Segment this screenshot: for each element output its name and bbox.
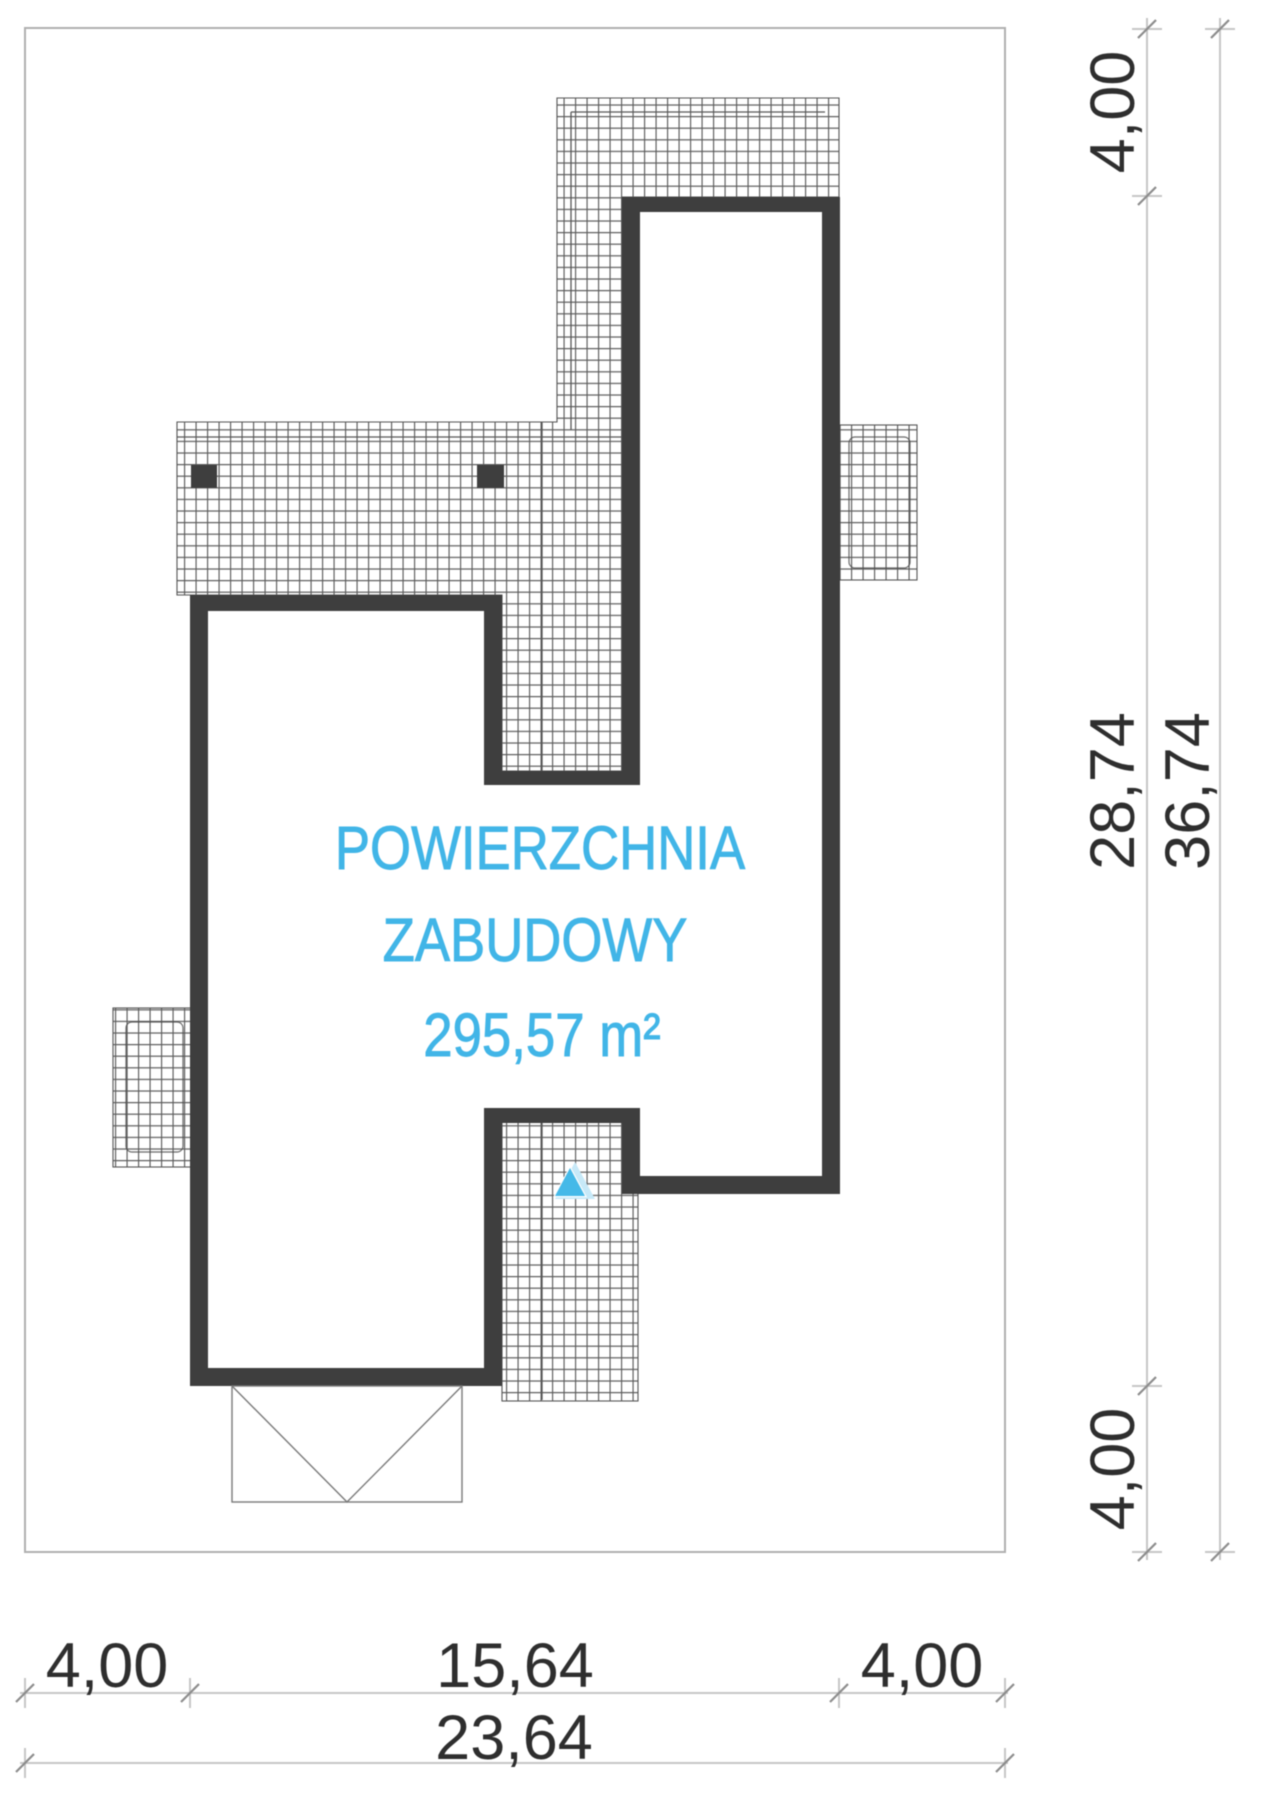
svg-text:POWIERZCHNIA: POWIERZCHNIA: [335, 814, 745, 882]
svg-text:295,57 m²: 295,57 m²: [423, 1001, 661, 1069]
svg-text:4,00: 4,00: [46, 1631, 169, 1701]
svg-text:4,00: 4,00: [861, 1631, 984, 1701]
svg-text:ZABUDOWY: ZABUDOWY: [383, 906, 688, 974]
svg-text:15,64: 15,64: [436, 1631, 594, 1701]
svg-text:4,00: 4,00: [1078, 51, 1148, 174]
svg-text:23,64: 23,64: [435, 1703, 593, 1773]
svg-text:36,74: 36,74: [1153, 712, 1223, 870]
svg-text:28,74: 28,74: [1078, 712, 1148, 870]
svg-text:4,00: 4,00: [1078, 1408, 1148, 1531]
